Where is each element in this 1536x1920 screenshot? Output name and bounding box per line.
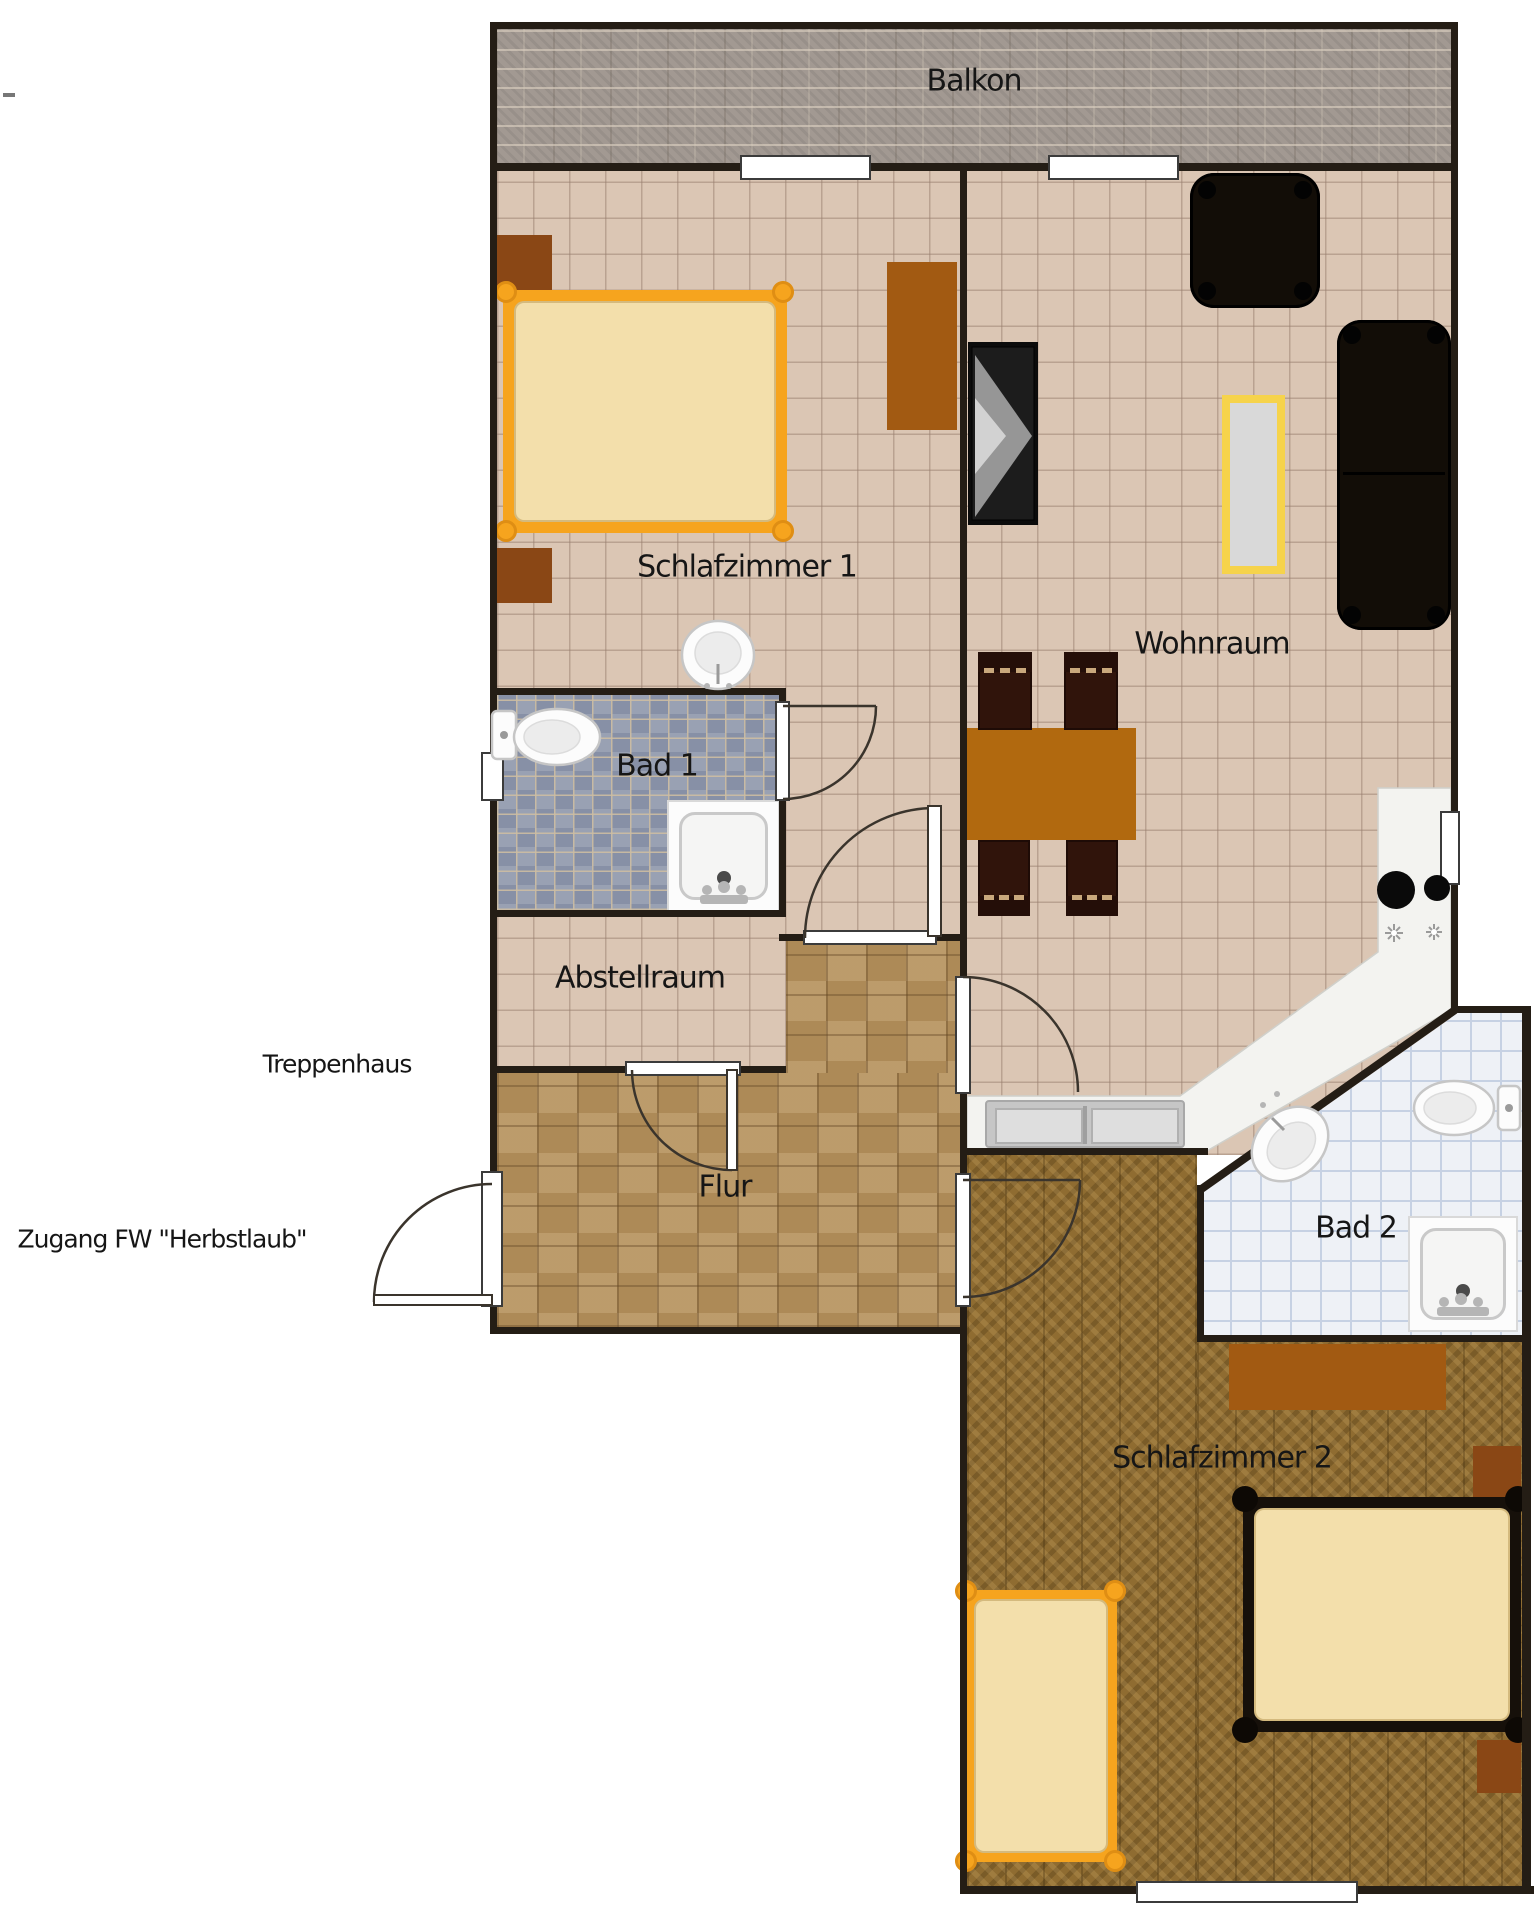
- floor-plan: Balkon Schlafzimmer 1 Wohnraum Bad 1 Abs…: [0, 0, 1536, 1920]
- label-bad1: Bad 1: [616, 749, 698, 784]
- balcony-door: [740, 155, 871, 180]
- bed-post: [1232, 1717, 1258, 1743]
- bed-post: [1104, 1850, 1126, 1872]
- wall-bad1-bottom: [493, 910, 786, 917]
- wall-bad1-top: [493, 688, 786, 695]
- nightstand: [1477, 1740, 1521, 1793]
- bedroom2-door-opening: [955, 1173, 971, 1307]
- wall-balcony-right: [1451, 22, 1458, 170]
- wall-main-top: [490, 163, 1458, 171]
- dining-table: [966, 728, 1136, 840]
- dining-chair: [1064, 652, 1118, 730]
- shower-bad1: [667, 800, 780, 912]
- bad1-door-opening: [775, 701, 790, 801]
- bed-single-room1: [503, 290, 787, 533]
- wall-bad2-left: [1197, 1185, 1204, 1342]
- bad1-window: [481, 752, 504, 801]
- abstellraum-door-opening: [625, 1061, 741, 1076]
- flur-floor-corridor: [786, 941, 960, 1076]
- bed-post: [495, 281, 517, 303]
- wall-flur-bottom: [490, 1327, 967, 1334]
- mattress: [1254, 1508, 1510, 1721]
- dresser-room1: [887, 262, 957, 430]
- door-arc-entry: [374, 1184, 492, 1305]
- bed-post: [1232, 1486, 1258, 1512]
- dresser-room2: [1229, 1344, 1446, 1410]
- label-flur: Flur: [699, 1170, 752, 1205]
- wall-balcony-left: [490, 22, 497, 170]
- sofa: [1337, 320, 1451, 630]
- label-bad2: Bad 2: [1315, 1211, 1397, 1246]
- kitchen-door-opening: [955, 976, 971, 1094]
- dining-chair: [978, 652, 1032, 730]
- wall-bad2-top: [1451, 1006, 1531, 1013]
- label-zugang: Zugang FW "Herbstlaub": [18, 1225, 307, 1254]
- label-schlafzimmer2: Schlafzimmer 2: [1112, 1441, 1332, 1476]
- wall-right-lower: [1522, 1006, 1531, 1894]
- mattress: [514, 301, 776, 522]
- wall-bad2-bottom: [1197, 1335, 1531, 1342]
- armchair: [1190, 173, 1320, 308]
- bed-post: [772, 281, 794, 303]
- bed-post: [1104, 1580, 1126, 1602]
- wall-counter-bottom: [960, 1148, 1208, 1155]
- nightstand: [497, 548, 552, 603]
- bed-post: [495, 520, 517, 542]
- label-treppenhaus: Treppenhaus: [263, 1050, 412, 1079]
- hall-door-opening: [803, 930, 937, 945]
- dining-chair: [978, 840, 1030, 916]
- label-abstellraum: Abstellraum: [555, 961, 725, 996]
- mattress: [974, 1599, 1108, 1853]
- corner-dash-mark: [3, 93, 15, 97]
- livingroom-window: [1440, 811, 1460, 885]
- kitchen-sink-unit: [985, 1100, 1185, 1148]
- wall-right-upper: [1451, 171, 1458, 1013]
- wall-balcony-top: [490, 22, 1458, 29]
- wall-room-divider: [960, 171, 967, 941]
- entry-door-opening: [481, 1171, 503, 1307]
- label-schlafzimmer1: Schlafzimmer 1: [637, 550, 857, 585]
- label-balkon: Balkon: [927, 64, 1022, 99]
- label-wohnraum: Wohnraum: [1134, 627, 1289, 662]
- shower-bad2: [1408, 1216, 1518, 1332]
- bed-single-room2: [965, 1590, 1117, 1862]
- coffee-table: [1222, 395, 1285, 574]
- balcony-door: [1048, 155, 1179, 180]
- bed-double: [1243, 1497, 1521, 1732]
- bed-post: [772, 520, 794, 542]
- bedroom2-window: [1136, 1881, 1358, 1903]
- dining-chair: [1066, 840, 1118, 916]
